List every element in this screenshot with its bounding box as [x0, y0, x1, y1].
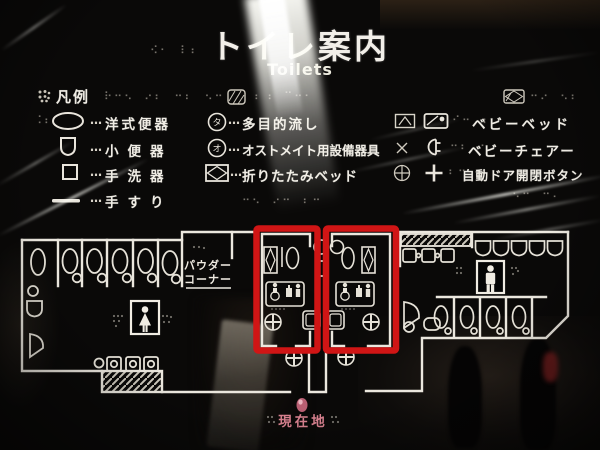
toilet-guide-sign: トイレ案内 Toilets ⠪⠂⠀⠇⠆ 凡例 ⠗⠒⠢⠀⠔⠆⠀⠒⠆⠀⠢⠒ ⠆⠰⠀⠉…: [0, 0, 600, 450]
accessible-room-2: [327, 241, 379, 331]
woman-icon: [131, 301, 159, 334]
man-icon: [477, 261, 504, 293]
current-location-label: 現在地: [278, 413, 328, 430]
svg-text:コーナー: コーナー: [184, 273, 232, 286]
svg-text:パウダー: パウダー: [184, 258, 232, 272]
wheelchair-ostomate-icons: [273, 283, 300, 297]
floor-plan-walls: [22, 232, 568, 392]
wheelchair-ostomate-icons: [343, 283, 370, 297]
current-location-marker: 現在地: [278, 398, 328, 430]
powder-corner-label: パウダー コーナー: [184, 258, 232, 288]
floor-plan: パウダー コーナー: [0, 0, 600, 450]
